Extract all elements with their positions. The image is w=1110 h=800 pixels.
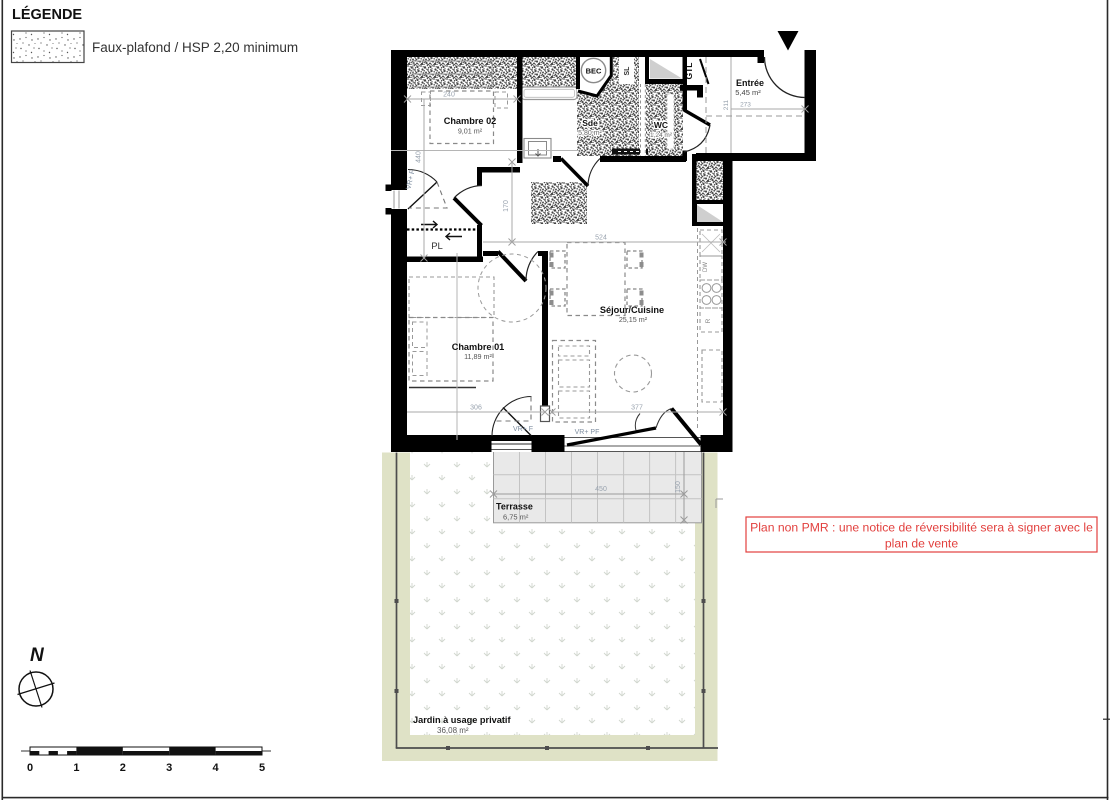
svg-text:Chambre 02: Chambre 02 xyxy=(444,116,497,126)
svg-text:Entrée: Entrée xyxy=(736,78,764,88)
svg-text:Terrasse: Terrasse xyxy=(496,502,533,512)
svg-text:Jardin à usage privatif: Jardin à usage privatif xyxy=(413,715,511,725)
svg-text:377: 377 xyxy=(631,405,643,412)
svg-text:Faux-plafond / HSP 2,20 minimu: Faux-plafond / HSP 2,20 minimum xyxy=(92,40,298,55)
svg-text:1: 1 xyxy=(73,762,79,774)
svg-text:PL: PL xyxy=(431,241,443,252)
svg-text:VR+ F: VR+ F xyxy=(513,426,533,433)
svg-text:9,01 m²: 9,01 m² xyxy=(458,127,483,136)
svg-text:4: 4 xyxy=(213,762,220,774)
svg-text:N: N xyxy=(30,645,45,666)
svg-text:BEC: BEC xyxy=(586,67,602,76)
svg-text:36,08 m²: 36,08 m² xyxy=(437,726,469,735)
svg-text:273: 273 xyxy=(740,102,751,109)
svg-text:LÉGENDE: LÉGENDE xyxy=(12,6,82,23)
svg-text:25,15 m²: 25,15 m² xyxy=(619,315,648,324)
svg-text:5,45 m²: 5,45 m² xyxy=(735,88,761,97)
svg-text:524: 524 xyxy=(595,235,607,242)
svg-text:6,75 m²: 6,75 m² xyxy=(503,513,529,522)
svg-text:1,24 m²: 1,24 m² xyxy=(650,132,673,139)
svg-text:11,89 m²: 11,89 m² xyxy=(464,352,492,361)
svg-text:170: 170 xyxy=(503,200,510,212)
svg-text:SL: SL xyxy=(624,66,631,76)
svg-text:306: 306 xyxy=(470,405,482,412)
svg-text:440: 440 xyxy=(416,151,423,163)
svg-text:2: 2 xyxy=(120,762,126,774)
svg-text:450: 450 xyxy=(595,486,607,493)
svg-text:DW: DW xyxy=(703,262,709,272)
svg-text:3: 3 xyxy=(166,762,172,774)
svg-text:0: 0 xyxy=(27,762,33,774)
svg-text:150: 150 xyxy=(675,481,682,493)
svg-text:240: 240 xyxy=(443,92,455,99)
svg-text:211: 211 xyxy=(723,99,730,110)
svg-text:R: R xyxy=(705,318,712,323)
svg-text:Chambre 01: Chambre 01 xyxy=(452,342,505,352)
svg-text:Sde: Sde xyxy=(582,118,598,128)
svg-text:plan de vente: plan de vente xyxy=(885,537,958,551)
svg-text:5: 5 xyxy=(259,762,265,774)
svg-text:Plan non PMR : une notice de r: Plan non PMR : une notice de réversibili… xyxy=(750,521,1093,535)
svg-text:VR+ PF: VR+ PF xyxy=(575,429,600,436)
svg-text:Séjour/Cuisine: Séjour/Cuisine xyxy=(600,305,664,315)
svg-text:WC: WC xyxy=(654,120,668,130)
svg-text:5,80 m²: 5,80 m² xyxy=(578,130,602,137)
